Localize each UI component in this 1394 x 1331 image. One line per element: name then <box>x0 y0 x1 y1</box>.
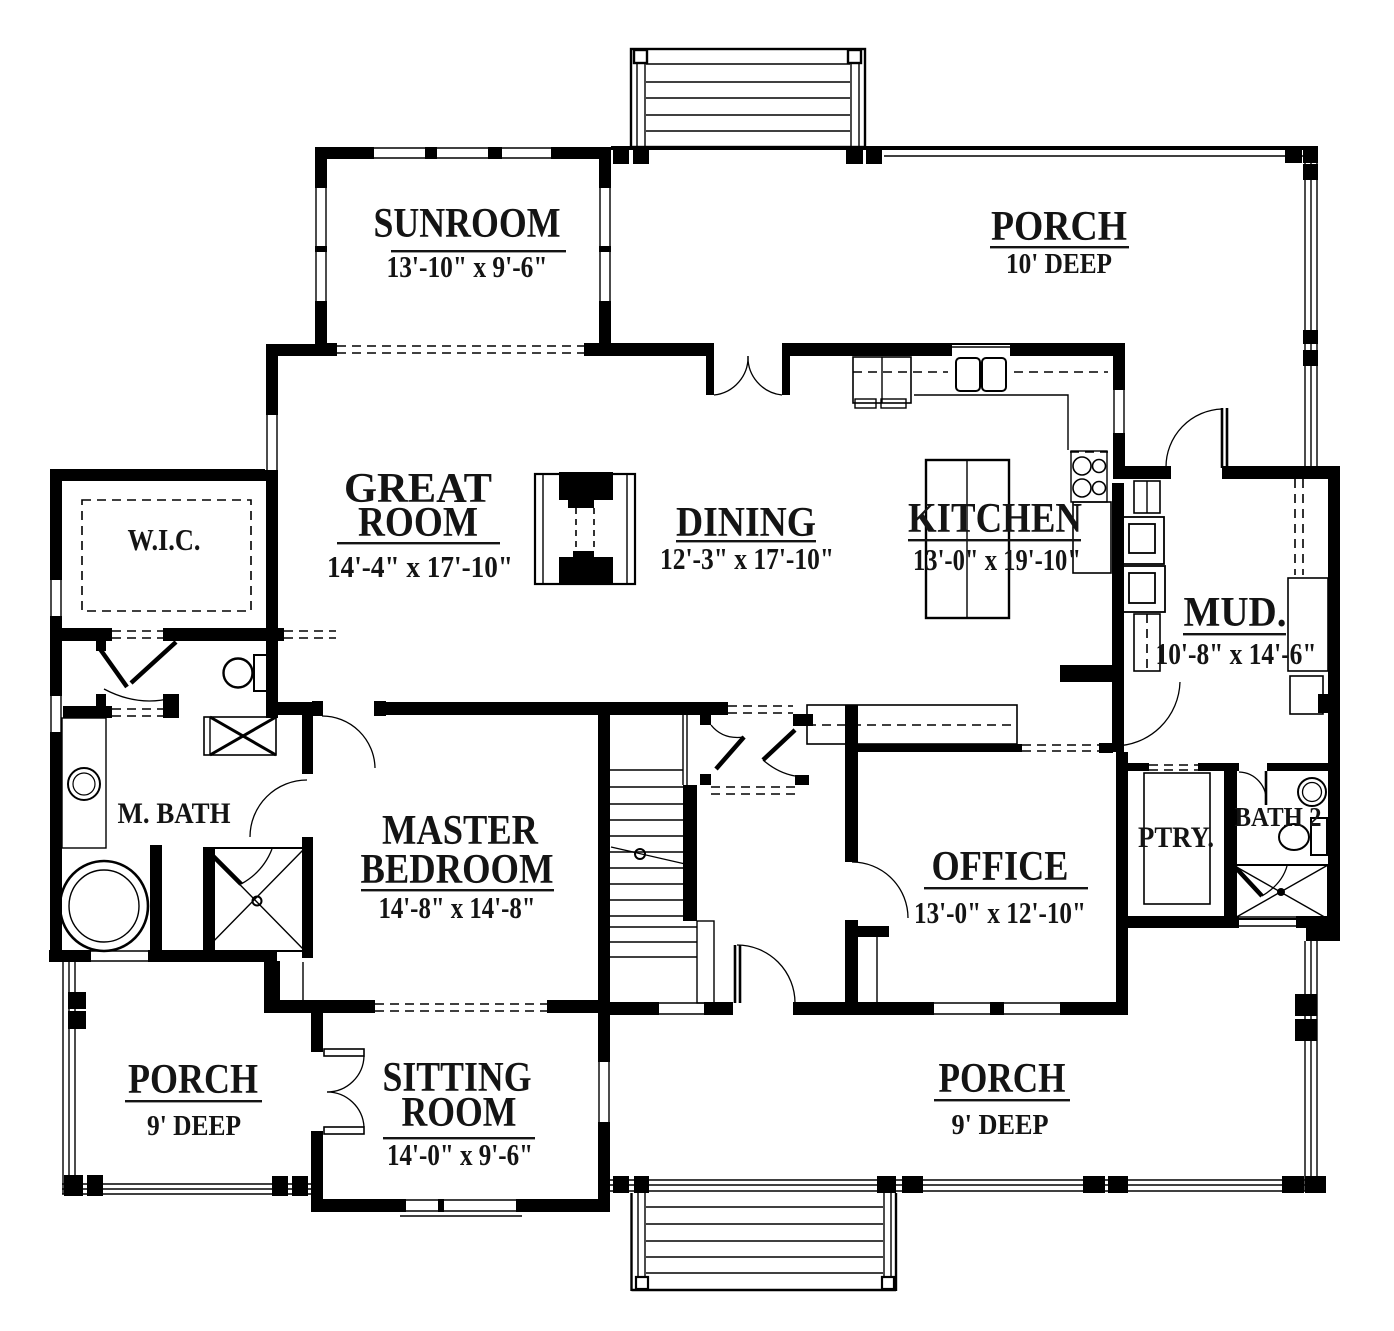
svg-text:KITCHEN: KITCHEN <box>908 496 1082 542</box>
svg-text:14'-0" x 9'-6": 14'-0" x 9'-6" <box>387 1137 533 1172</box>
svg-text:OFFICE: OFFICE <box>932 844 1069 890</box>
svg-text:M. BATH: M. BATH <box>118 797 231 830</box>
svg-text:13'-10" x 9'-6": 13'-10" x 9'-6" <box>387 249 548 284</box>
svg-text:PORCH: PORCH <box>939 1056 1066 1102</box>
svg-text:ROOM: ROOM <box>402 1090 517 1136</box>
svg-text:14'-4" x 17'-10": 14'-4" x 17'-10" <box>327 549 513 584</box>
svg-text:10' DEEP: 10' DEEP <box>1006 248 1112 280</box>
svg-text:9' DEEP: 9' DEEP <box>952 1109 1049 1141</box>
svg-text:PORCH: PORCH <box>991 204 1127 250</box>
svg-text:14'-8" x 14'-8": 14'-8" x 14'-8" <box>379 890 536 925</box>
svg-text:PORCH: PORCH <box>128 1057 258 1103</box>
svg-text:9' DEEP: 9' DEEP <box>147 1110 241 1142</box>
svg-text:12'-3" x 17'-10": 12'-3" x 17'-10" <box>660 541 834 576</box>
svg-text:W.I.C.: W.I.C. <box>128 522 201 557</box>
svg-text:ROOM: ROOM <box>358 500 478 546</box>
svg-text:10'-8" x 14'-6": 10'-8" x 14'-6" <box>1156 636 1317 671</box>
svg-text:SUNROOM: SUNROOM <box>374 201 561 247</box>
svg-text:DINING: DINING <box>676 500 816 546</box>
svg-text:13'-0" x 19'-10": 13'-0" x 19'-10" <box>913 542 1081 577</box>
svg-text:BEDROOM: BEDROOM <box>361 847 554 893</box>
svg-text:BATH 2: BATH 2 <box>1235 802 1322 832</box>
svg-text:MUD.: MUD. <box>1184 590 1287 636</box>
svg-text:13'-0" x 12'-10": 13'-0" x 12'-10" <box>914 895 1086 930</box>
svg-text:PTRY.: PTRY. <box>1138 821 1214 854</box>
